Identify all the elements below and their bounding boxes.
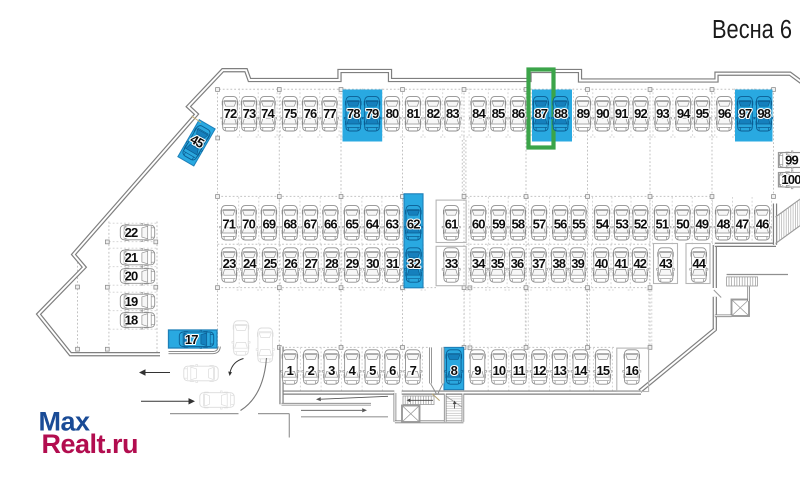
- svg-text:92: 92: [634, 106, 647, 121]
- svg-text:23: 23: [223, 256, 236, 271]
- svg-text:98: 98: [757, 106, 770, 121]
- svg-text:50: 50: [676, 217, 689, 232]
- svg-text:13: 13: [553, 363, 566, 378]
- svg-text:1: 1: [287, 363, 294, 378]
- svg-text:70: 70: [242, 217, 255, 232]
- svg-text:65: 65: [345, 217, 358, 232]
- svg-text:66: 66: [324, 217, 337, 232]
- svg-text:42: 42: [633, 256, 646, 271]
- svg-text:88: 88: [554, 106, 567, 121]
- svg-text:44: 44: [692, 256, 706, 271]
- svg-text:20: 20: [125, 269, 138, 284]
- svg-text:91: 91: [615, 106, 628, 121]
- svg-text:33: 33: [445, 256, 458, 271]
- svg-text:68: 68: [283, 217, 296, 232]
- svg-text:85: 85: [492, 106, 505, 121]
- svg-text:29: 29: [346, 256, 359, 271]
- svg-text:47: 47: [736, 217, 749, 232]
- svg-text:57: 57: [533, 217, 546, 232]
- svg-text:15: 15: [596, 363, 609, 378]
- svg-text:86: 86: [512, 106, 525, 121]
- svg-text:96: 96: [718, 106, 731, 121]
- svg-text:31: 31: [386, 256, 399, 271]
- svg-text:39: 39: [571, 256, 584, 271]
- svg-text:17: 17: [185, 332, 198, 347]
- svg-text:56: 56: [554, 217, 567, 232]
- svg-text:73: 73: [243, 106, 256, 121]
- svg-text:75: 75: [284, 106, 297, 121]
- svg-text:90: 90: [596, 106, 609, 121]
- svg-text:94: 94: [677, 106, 691, 121]
- svg-text:100: 100: [781, 172, 800, 187]
- svg-text:14: 14: [574, 363, 588, 378]
- svg-text:7: 7: [410, 363, 417, 378]
- svg-text:2: 2: [308, 363, 315, 378]
- svg-text:62: 62: [407, 217, 420, 232]
- svg-text:10: 10: [492, 363, 505, 378]
- svg-text:6: 6: [389, 363, 396, 378]
- svg-text:99: 99: [785, 153, 798, 168]
- svg-text:63: 63: [385, 217, 398, 232]
- svg-text:79: 79: [366, 106, 379, 121]
- svg-text:72: 72: [224, 106, 237, 121]
- svg-text:3: 3: [328, 363, 335, 378]
- svg-text:84: 84: [472, 106, 486, 121]
- svg-text:77: 77: [323, 106, 336, 121]
- svg-text:16: 16: [625, 363, 638, 378]
- svg-text:54: 54: [596, 217, 610, 232]
- svg-text:61: 61: [445, 217, 458, 232]
- svg-text:67: 67: [304, 217, 317, 232]
- svg-text:43: 43: [659, 256, 672, 271]
- svg-text:35: 35: [491, 256, 504, 271]
- svg-text:53: 53: [615, 217, 628, 232]
- svg-text:80: 80: [386, 106, 399, 121]
- svg-text:Realt.ru: Realt.ru: [42, 429, 139, 459]
- svg-text:71: 71: [222, 217, 235, 232]
- svg-text:41: 41: [614, 256, 627, 271]
- svg-text:87: 87: [534, 106, 547, 121]
- svg-text:60: 60: [472, 217, 485, 232]
- svg-text:19: 19: [125, 294, 138, 309]
- svg-text:51: 51: [655, 217, 668, 232]
- svg-text:36: 36: [511, 256, 524, 271]
- svg-text:11: 11: [513, 363, 526, 378]
- svg-text:34: 34: [472, 256, 486, 271]
- svg-text:83: 83: [446, 106, 459, 121]
- svg-text:30: 30: [366, 256, 379, 271]
- svg-text:93: 93: [656, 106, 669, 121]
- svg-text:12: 12: [533, 363, 546, 378]
- svg-text:21: 21: [125, 250, 138, 265]
- svg-text:22: 22: [125, 225, 138, 240]
- svg-text:48: 48: [717, 217, 730, 232]
- svg-text:59: 59: [492, 217, 505, 232]
- svg-text:25: 25: [264, 256, 277, 271]
- svg-text:8: 8: [451, 363, 458, 378]
- svg-text:97: 97: [739, 106, 752, 121]
- svg-text:55: 55: [572, 217, 585, 232]
- svg-text:52: 52: [634, 217, 647, 232]
- svg-text:40: 40: [595, 256, 608, 271]
- svg-text:89: 89: [577, 106, 590, 121]
- svg-text:64: 64: [366, 217, 380, 232]
- svg-text:81: 81: [407, 106, 420, 121]
- svg-text:26: 26: [284, 256, 297, 271]
- svg-text:74: 74: [261, 106, 275, 121]
- svg-text:24: 24: [243, 256, 257, 271]
- svg-text:46: 46: [756, 217, 769, 232]
- svg-text:28: 28: [325, 256, 338, 271]
- svg-text:9: 9: [474, 363, 481, 378]
- svg-text:18: 18: [125, 313, 138, 328]
- svg-text:27: 27: [304, 256, 317, 271]
- svg-text:Весна 6: Весна 6: [712, 16, 792, 44]
- svg-text:58: 58: [511, 217, 524, 232]
- svg-text:37: 37: [532, 256, 545, 271]
- svg-text:49: 49: [695, 217, 708, 232]
- svg-text:69: 69: [262, 217, 275, 232]
- svg-text:76: 76: [304, 106, 317, 121]
- svg-text:5: 5: [369, 363, 376, 378]
- svg-text:38: 38: [552, 256, 565, 271]
- svg-text:32: 32: [407, 256, 420, 271]
- svg-text:95: 95: [696, 106, 709, 121]
- svg-text:82: 82: [427, 106, 440, 121]
- svg-text:78: 78: [347, 106, 360, 121]
